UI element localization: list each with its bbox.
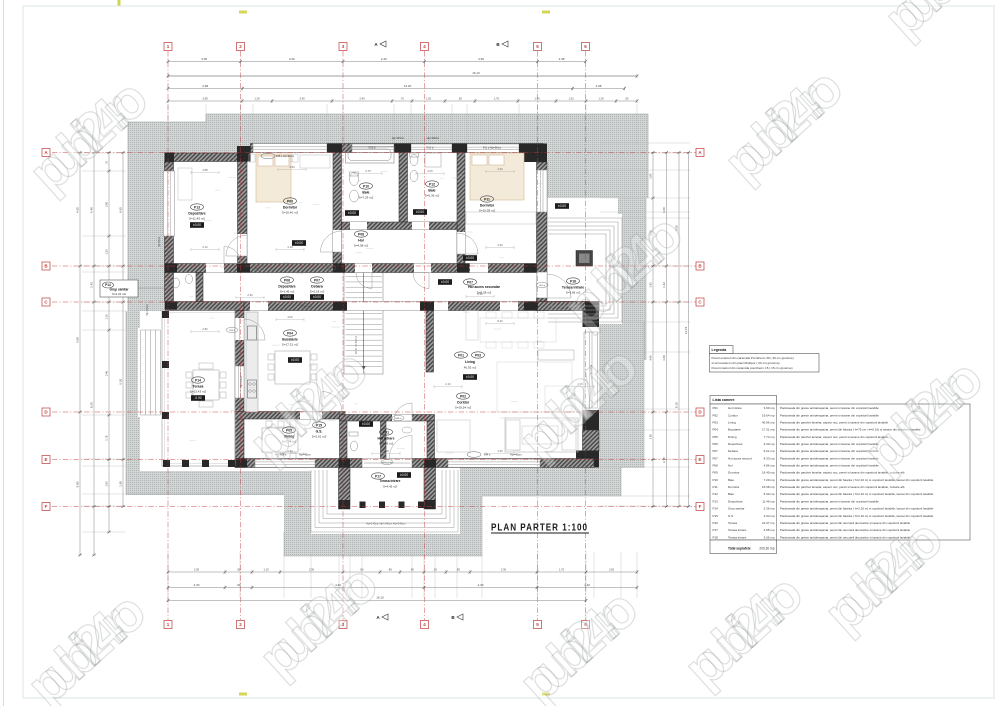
svg-text:8.20: 8.20 — [497, 319, 503, 323]
svg-text:1.20: 1.20 — [105, 249, 109, 255]
svg-text:P14: P14 — [195, 378, 201, 382]
svg-text:.80: .80 — [388, 568, 392, 572]
svg-text:F11 d Hp=90cm: F11 d Hp=90cm — [483, 146, 501, 150]
svg-text:13.20: 13.20 — [404, 84, 412, 88]
svg-text:.30: .30 — [433, 568, 437, 572]
svg-text:P08: P08 — [713, 464, 719, 468]
svg-text:P15: P15 — [713, 514, 719, 518]
svg-text:S=7,29 m2: S=7,29 m2 — [359, 195, 374, 199]
svg-text:S=2,32 m2: S=2,32 m2 — [112, 292, 126, 296]
svg-text:1.90: 1.90 — [649, 434, 653, 440]
svg-text:7.74 mp: 7.74 mp — [764, 435, 775, 439]
svg-text:Debara: Debara — [311, 284, 323, 288]
svg-text:P12: P12 — [713, 492, 719, 496]
svg-text:±0.00: ±0.00 — [400, 473, 408, 477]
svg-text:Pardoseala din gresie antidera: Pardoseala din gresie antiderapanta, per… — [780, 413, 879, 417]
svg-text:.90: .90 — [237, 568, 241, 572]
svg-text:15.38 mp: 15.38 mp — [762, 485, 775, 489]
svg-text:Living: Living — [465, 360, 475, 364]
svg-text:P03: P03 — [475, 353, 481, 357]
svg-text:P07: P07 — [314, 278, 320, 282]
svg-text:Bucatarie: Bucatarie — [728, 428, 741, 432]
svg-text:Total suprafete: Total suprafete — [728, 547, 751, 551]
svg-text:Dormitor: Dormitor — [728, 485, 740, 489]
svg-text:5.30 mp: 5.30 mp — [764, 492, 775, 496]
svg-text:U02 s: U02 s — [395, 418, 402, 420]
svg-text:Hp=115cm: Hp=115cm — [392, 136, 404, 140]
svg-text:2.60: 2.60 — [105, 201, 109, 207]
svg-text:P09: P09 — [287, 199, 293, 203]
svg-text:S=8,28 m2: S=8,28 m2 — [477, 291, 492, 295]
svg-text:P02: P02 — [713, 413, 719, 417]
svg-text:1.90: 1.90 — [119, 481, 123, 487]
svg-text:16.40 mp: 16.40 mp — [762, 471, 775, 475]
svg-text:Hol: Hol — [358, 238, 364, 242]
svg-text:1.70: 1.70 — [559, 568, 565, 572]
svg-text:Pardoseala din gresie antidera: Pardoseala din gresie antiderapanta, per… — [780, 521, 910, 525]
svg-text:200,30 mp: 200,30 mp — [759, 547, 774, 551]
svg-text:4.30: 4.30 — [478, 583, 484, 587]
svg-text:±0.00: ±0.00 — [295, 241, 303, 245]
svg-text:Dormitor: Dormitor — [480, 203, 495, 207]
svg-text:4.40: 4.40 — [662, 355, 666, 361]
svg-text:Terasa intrare: Terasa intrare — [380, 479, 401, 483]
svg-text:6.00: 6.00 — [76, 337, 80, 343]
svg-text:Hp=140cm: Hp=140cm — [146, 304, 149, 316]
svg-text:2.30: 2.30 — [247, 293, 253, 297]
svg-text:Hp=90cm: Hp=90cm — [158, 237, 161, 247]
svg-text:1.48: 1.48 — [383, 449, 389, 453]
svg-text:8.33 mp: 8.33 mp — [764, 456, 775, 460]
svg-text:.90: .90 — [236, 583, 241, 587]
svg-text:±0.00: ±0.00 — [416, 210, 424, 214]
svg-text:P03: P03 — [713, 421, 719, 425]
svg-text:2.75: 2.75 — [365, 169, 371, 173]
svg-text:P11: P11 — [484, 197, 490, 201]
svg-text:P18: P18 — [713, 535, 719, 539]
svg-text:Pardoseala din gresie antidera: Pardoseala din gresie antiderapanta, per… — [780, 499, 879, 503]
svg-text:U06 d: U06 d — [439, 268, 446, 270]
svg-text:P07: P07 — [713, 456, 719, 460]
svg-text:.50: .50 — [625, 97, 629, 101]
svg-text:Dining: Dining — [728, 435, 737, 439]
svg-text:2.38: 2.38 — [559, 57, 565, 61]
svg-text:Legenda: Legenda — [712, 348, 728, 352]
svg-text:1.20: 1.20 — [598, 97, 604, 101]
svg-text:U07 g: U07 g — [463, 306, 470, 308]
svg-text:U05 d: U05 d — [327, 268, 334, 270]
svg-text:3.05: 3.05 — [201, 57, 207, 61]
svg-text:Lista camere: Lista camere — [713, 398, 735, 402]
svg-text:16,10: 16,10 — [376, 596, 384, 600]
svg-text:1.90: 1.90 — [105, 481, 109, 487]
svg-text:4.50: 4.50 — [289, 165, 295, 169]
svg-text:Depozitare: Depozitare — [728, 442, 743, 446]
svg-text:PLAN PARTER 1:100: PLAN PARTER 1:100 — [491, 523, 588, 534]
svg-text:Hol intrare: Hol intrare — [378, 436, 395, 440]
svg-text:±0.00: ±0.00 — [362, 422, 370, 426]
svg-text:4.65 mp: 4.65 mp — [764, 528, 775, 532]
svg-text:U04 k: U04 k — [229, 330, 236, 332]
svg-text:F: F — [699, 504, 702, 509]
svg-text:Depozitare: Depozitare — [188, 211, 205, 215]
svg-text:±0.00: ±0.00 — [466, 375, 474, 379]
svg-text:F10 d: F10 d — [369, 146, 376, 150]
svg-text:S=15,38 m2: S=15,38 m2 — [479, 208, 496, 212]
svg-text:±0.00: ±0.00 — [558, 204, 566, 208]
svg-text:2.04 mp: 2.04 mp — [764, 514, 775, 518]
svg-text:±0.00: ±0.00 — [441, 280, 449, 284]
svg-text:Hp=115cm: Hp=115cm — [427, 136, 439, 140]
svg-text:3.40: 3.40 — [105, 370, 109, 376]
svg-text:2.30: 2.30 — [194, 568, 200, 572]
svg-text:Pardoseala din parchet lamelar: Pardoseala din parchet lamelar, aspect n… — [780, 485, 905, 489]
svg-text:1.70: 1.70 — [494, 97, 500, 101]
svg-text:P01: P01 — [383, 430, 389, 434]
svg-text:1.78: 1.78 — [105, 435, 109, 441]
svg-text:Depozitare: Depozitare — [728, 499, 743, 503]
svg-text:.90: .90 — [410, 568, 414, 572]
svg-text:6.21 mp: 6.21 mp — [764, 449, 775, 453]
svg-text:1.20: 1.20 — [568, 97, 574, 101]
svg-text:3.40 mp: 3.40 mp — [764, 442, 775, 446]
svg-text:1.10: 1.10 — [263, 568, 269, 572]
svg-text:S=5,36 m2: S=5,36 m2 — [425, 193, 440, 197]
svg-text:Hol acces secund: Hol acces secund — [728, 456, 752, 460]
svg-text:8.20: 8.20 — [90, 402, 94, 408]
svg-text:±0.00: ±0.00 — [193, 223, 201, 227]
svg-text:2.10: 2.10 — [445, 382, 451, 386]
svg-text:S=17,31 m2: S=17,31 m2 — [282, 342, 299, 346]
svg-text:S=19,54 m2: S=19,54 m2 — [455, 405, 472, 409]
svg-text:14.15: 14.15 — [684, 326, 688, 334]
svg-text:P12: P12 — [429, 182, 435, 186]
svg-text:Hp=140cm Hp=140cm Hp=140cm: Hp=140cm Hp=140cm Hp=140cm — [366, 522, 405, 526]
svg-text:Terasa: Terasa — [193, 384, 204, 388]
svg-text:1.10: 1.10 — [105, 314, 109, 320]
svg-text:S=4,45 m2: S=4,45 m2 — [383, 485, 397, 489]
svg-text:21.67 mp: 21.67 mp — [762, 521, 775, 525]
svg-text:S=4,08 m2: S=4,08 m2 — [354, 243, 369, 247]
svg-text:P01: P01 — [458, 353, 464, 357]
svg-text:P10: P10 — [713, 478, 719, 482]
svg-text:2.40: 2.40 — [299, 97, 305, 101]
svg-text:P07: P07 — [467, 280, 473, 284]
svg-text:3.99 mp: 3.99 mp — [764, 406, 775, 410]
svg-text:6.00: 6.00 — [675, 225, 679, 231]
svg-text:4.60: 4.60 — [662, 207, 666, 213]
svg-text:2.40: 2.40 — [359, 97, 365, 101]
svg-text:4.60: 4.60 — [76, 207, 80, 213]
svg-text:G.S.: G.S. — [728, 514, 734, 518]
svg-text:P13: P13 — [194, 205, 200, 209]
svg-text:4.86 mp: 4.86 mp — [764, 464, 775, 468]
svg-text:2.10: 2.10 — [202, 245, 208, 249]
svg-text:S=16,40 m2: S=16,40 m2 — [282, 210, 299, 214]
svg-text:P02: P02 — [460, 394, 466, 398]
svg-text:U01 g: U01 g — [539, 285, 546, 287]
svg-text:4.40: 4.40 — [649, 355, 653, 361]
svg-text:2.98: 2.98 — [202, 97, 208, 101]
svg-text:U04 d: U04 d — [303, 306, 310, 308]
svg-text:Pardoseala din gresie antidera: Pardoseala din gresie antiderapanta, per… — [780, 507, 934, 511]
svg-text:4.48: 4.48 — [90, 207, 94, 213]
svg-text:.90: .90 — [360, 568, 364, 572]
svg-text:Dormitor: Dormitor — [283, 205, 298, 209]
svg-text:±0.00: ±0.00 — [313, 295, 321, 299]
svg-text:Hol: Hol — [728, 464, 733, 468]
svg-text:1.20: 1.20 — [426, 97, 432, 101]
svg-text:8.18: 8.18 — [675, 402, 679, 408]
svg-text:1.50: 1.50 — [534, 97, 540, 101]
svg-text:2.08: 2.08 — [596, 84, 602, 88]
svg-text:Grup sanitar: Grup sanitar — [728, 507, 745, 511]
svg-text:4.60: 4.60 — [119, 207, 123, 213]
svg-text:P06: P06 — [713, 442, 719, 446]
svg-text:1.42: 1.42 — [662, 282, 666, 288]
svg-text:Terasa intrare: Terasa intrare — [728, 528, 747, 532]
svg-text:.70: .70 — [400, 97, 404, 101]
svg-text:P04: P04 — [287, 331, 293, 335]
svg-text:17.31 mp: 17.31 mp — [762, 428, 775, 432]
svg-text:±0.00: ±0.00 — [348, 211, 356, 215]
svg-text:Pardoseala din gresie antidera: Pardoseala din gresie antiderapanta, per… — [780, 492, 934, 496]
svg-text:P14: P14 — [713, 507, 719, 511]
svg-text:4.40: 4.40 — [584, 583, 590, 587]
svg-text:2.50: 2.50 — [609, 568, 615, 572]
svg-text:F10 d: F10 d — [427, 146, 434, 150]
svg-text:2.30: 2.30 — [501, 568, 507, 572]
svg-text:E: E — [44, 457, 47, 462]
svg-text:P17: P17 — [713, 528, 719, 532]
svg-text:7.29 mp: 7.29 mp — [764, 478, 775, 482]
svg-text:si termosistem din placi Multi: si termosistem din placi Multipor ( 20 c… — [712, 361, 780, 365]
svg-text:4.30: 4.30 — [289, 57, 295, 61]
svg-text:4.90: 4.90 — [478, 57, 484, 61]
svg-text:P08: P08 — [358, 232, 364, 236]
svg-text:2.88: 2.88 — [202, 168, 208, 172]
svg-text:S=13,43 m2: S=13,43 m2 — [190, 389, 207, 393]
svg-text:1.80: 1.80 — [649, 173, 653, 179]
svg-text:Baie: Baie — [728, 478, 734, 482]
svg-text:40.96 mp: 40.96 mp — [762, 421, 775, 425]
svg-text:16,10: 16,10 — [472, 71, 480, 75]
svg-text:.85: .85 — [456, 568, 460, 572]
svg-text:Baie: Baie — [728, 492, 734, 496]
svg-text:Hol intrare: Hol intrare — [728, 406, 742, 410]
svg-text:P11: P11 — [713, 485, 718, 489]
svg-text:Baie: Baie — [362, 190, 369, 194]
svg-text:U05 s: U05 s — [255, 268, 262, 270]
svg-text:±0.00: ±0.00 — [291, 358, 299, 362]
svg-text:.50: .50 — [458, 97, 462, 101]
svg-text:2.00: 2.00 — [427, 169, 433, 173]
svg-text:P06: P06 — [284, 278, 290, 282]
svg-text:Pardoseala din gresie antidera: Pardoseala din gresie antiderapanta, per… — [780, 464, 879, 468]
svg-text:±0.00: ±0.00 — [283, 295, 291, 299]
svg-text:Pardoseala din gresie antidera: Pardoseala din gresie antiderapanta, per… — [780, 478, 934, 482]
svg-text:S=2,18 m2: S=2,18 m2 — [310, 289, 325, 293]
svg-text:19.64 mp: 19.64 mp — [762, 413, 775, 417]
svg-text:U05 d: U05 d — [494, 268, 501, 270]
svg-text:6.30: 6.30 — [119, 379, 123, 385]
svg-text:F04 s: F04 s — [484, 453, 491, 457]
svg-text:P17: P17 — [375, 474, 381, 478]
svg-text:Coridor: Coridor — [457, 400, 470, 404]
svg-text:2.30: 2.30 — [309, 568, 315, 572]
svg-text:Pardoseala din gresie antidera: Pardoseala din gresie antiderapanta, per… — [780, 514, 934, 518]
svg-text:Terasa intrare: Terasa intrare — [728, 535, 747, 539]
svg-text:U01 g 2 ds: U01 g 2 ds — [382, 462, 393, 464]
svg-text:Baie: Baie — [428, 188, 435, 192]
svg-text:Coridor: Coridor — [728, 413, 738, 417]
svg-text:Debara: Debara — [728, 449, 738, 453]
svg-text:4.00: 4.00 — [287, 315, 293, 319]
svg-text:Hp=40cm: Hp=40cm — [510, 453, 521, 457]
svg-text:1.20: 1.20 — [254, 97, 260, 101]
svg-text:S=11,40 m2: S=11,40 m2 — [189, 216, 205, 220]
svg-text:3.78: 3.78 — [662, 457, 666, 463]
svg-text:Pereti interiori din caramida: Pereti interiori din caramida porotherm … — [712, 366, 793, 370]
svg-text:Hp=140cm: Hp=140cm — [240, 376, 243, 388]
svg-text:Pardoseala din gresie antidera: Pardoseala din gresie antiderapanta, per… — [780, 456, 879, 460]
svg-text:P04: P04 — [713, 428, 719, 432]
svg-text:2.36 mp: 2.36 mp — [764, 507, 775, 511]
svg-text:Grup sanitar: Grup sanitar — [110, 288, 130, 292]
svg-text:11.46 mp: 11.46 mp — [762, 499, 775, 503]
svg-text:P10: P10 — [363, 184, 369, 188]
svg-text:4.30: 4.30 — [497, 167, 503, 171]
svg-text:P07: P07 — [713, 449, 719, 453]
svg-text:5.80: 5.80 — [76, 481, 80, 487]
svg-text:1.42: 1.42 — [90, 282, 94, 288]
svg-text:±0.00: ±0.00 — [466, 256, 474, 260]
svg-text:S=1,46 m2: S=1,46 m2 — [280, 289, 295, 293]
svg-text:2.40: 2.40 — [381, 57, 387, 61]
svg-text:Living: Living — [728, 421, 736, 425]
svg-text:4.30: 4.30 — [497, 449, 503, 453]
svg-text:4.30: 4.30 — [497, 243, 503, 247]
svg-text:P13: P13 — [713, 499, 719, 503]
svg-text:3.66 mp: 3.66 mp — [764, 535, 775, 539]
svg-text:Pardoseala din gresie antidera: Pardoseala din gresie antiderapanta, per… — [780, 406, 879, 410]
svg-text:S=3,96 m2: S=3,96 m2 — [379, 441, 394, 445]
svg-text:Bucatarie: Bucatarie — [282, 337, 298, 341]
svg-text:P16: P16 — [713, 521, 719, 525]
svg-text:Pereti exteriori din caramida: Pereti exteriori din caramida Porotherm … — [712, 356, 794, 360]
svg-text:F08 s Hp=90cm: F08 s Hp=90cm — [276, 154, 294, 158]
svg-text:Dormitor: Dormitor — [728, 471, 740, 475]
svg-text:F: F — [45, 504, 48, 509]
svg-text:U02 d: U02 d — [349, 418, 356, 420]
svg-text:E: E — [698, 457, 701, 462]
svg-text:Terasa: Terasa — [728, 521, 737, 525]
svg-text:Hol acces secundar: Hol acces secundar — [468, 285, 501, 289]
svg-text:Depozitare: Depozitare — [278, 284, 295, 288]
svg-text:40,92 m2: 40,92 m2 — [464, 366, 477, 370]
svg-text:2.98: 2.98 — [202, 84, 208, 88]
svg-text:2.80: 2.80 — [202, 327, 208, 331]
svg-text:2.30: 2.30 — [194, 583, 200, 587]
svg-text:-0.90: -0.90 — [194, 396, 201, 400]
svg-text:P05: P05 — [713, 435, 719, 439]
svg-text:P01: P01 — [713, 406, 719, 410]
svg-text:P09: P09 — [713, 471, 719, 475]
svg-text:16 Tr. 17,5/27,0: 16 Tr. 17,5/27,0 — [354, 335, 358, 354]
